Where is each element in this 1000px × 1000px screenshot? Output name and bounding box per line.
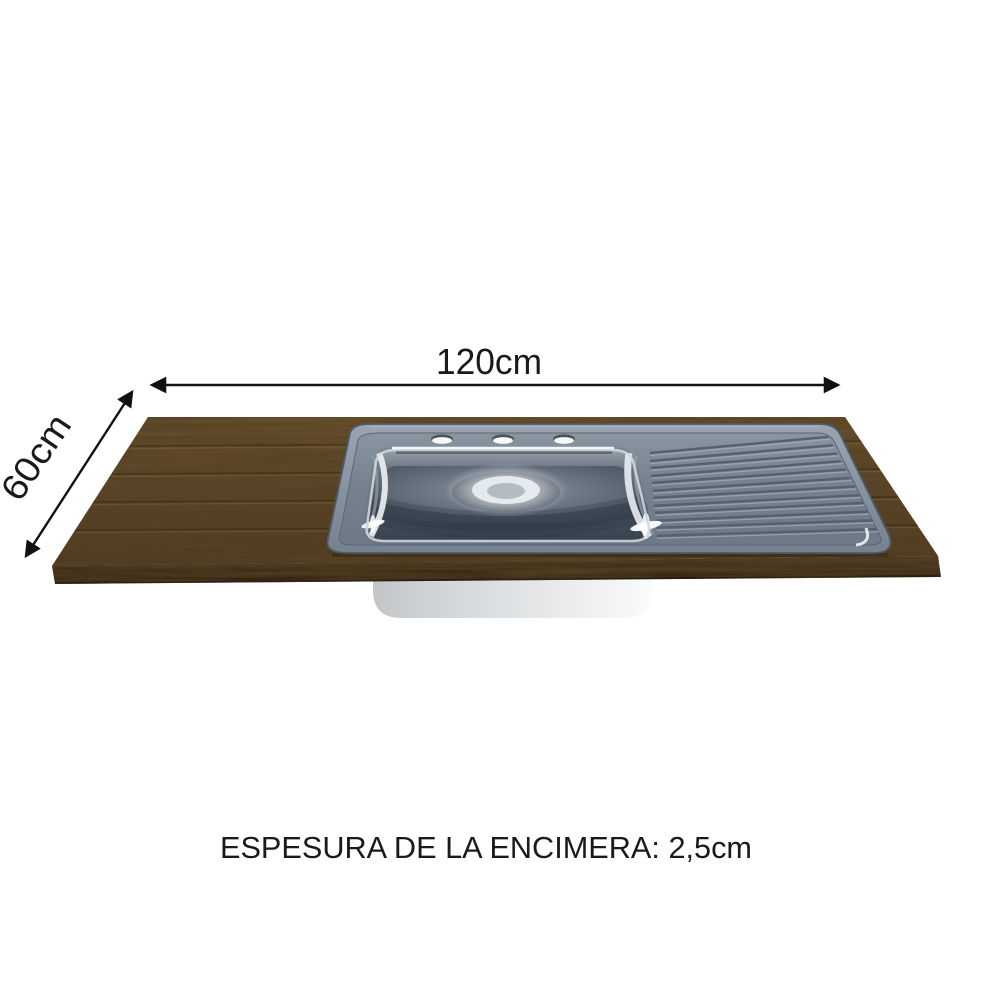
faucet-hole-left-opening (432, 437, 452, 444)
faucet-hole-right-opening (554, 437, 574, 444)
faucet-hole-center-opening (493, 437, 513, 444)
product-diagram: 120cm 60cm ESPESURA DE LA ENCIMERA: 2,5c… (0, 0, 1000, 1000)
width-dimension: 120cm (152, 341, 838, 385)
thickness-caption: ESPESURA DE LA ENCIMERA: 2,5cm (220, 830, 752, 865)
product-image: 120cm 60cm ESPESURA DE LA ENCIMERA: 2,5c… (0, 0, 1000, 1000)
drain-center (487, 483, 525, 499)
drain (444, 463, 568, 517)
width-dimension-label: 120cm (436, 341, 542, 382)
